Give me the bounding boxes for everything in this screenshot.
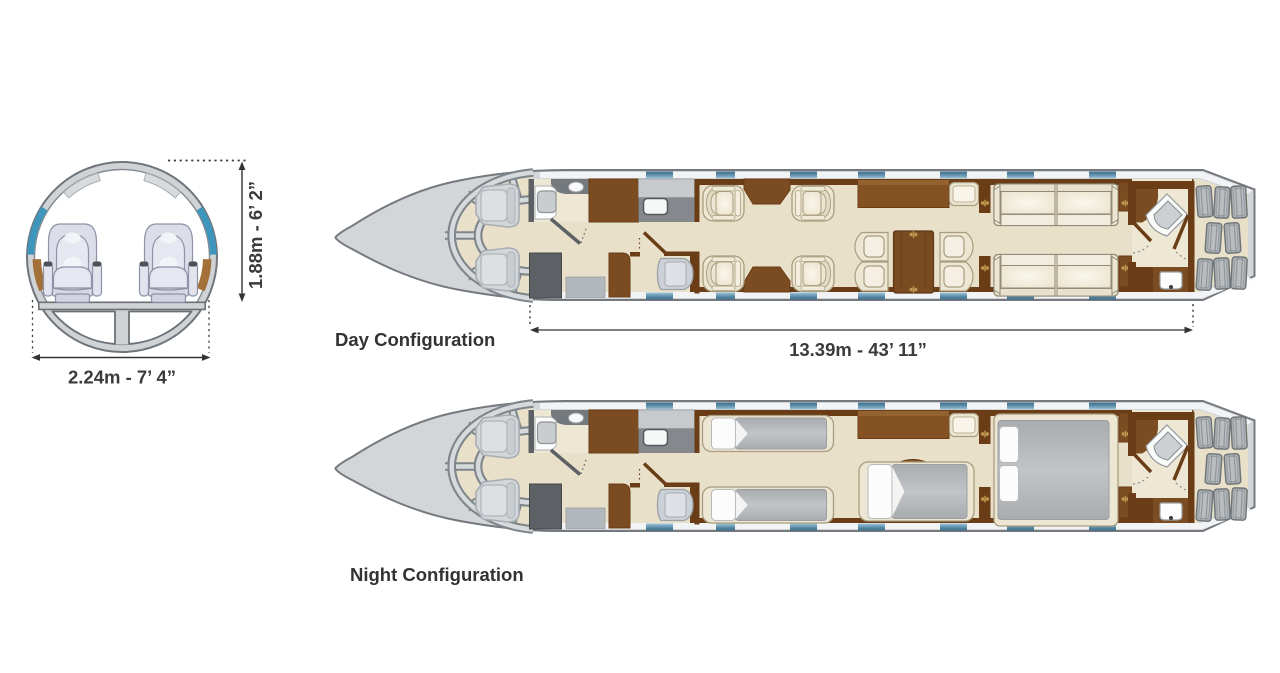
svg-text:13.39m - 43’ 11”: 13.39m - 43’ 11”	[789, 339, 927, 360]
svg-text:1.88m - 6’ 2”: 1.88m - 6’ 2”	[245, 181, 266, 289]
svg-text:Day Configuration: Day Configuration	[335, 329, 495, 350]
svg-text:2.24m - 7’ 4”: 2.24m - 7’ 4”	[68, 367, 176, 388]
svg-text:Night Configuration: Night Configuration	[350, 564, 524, 585]
